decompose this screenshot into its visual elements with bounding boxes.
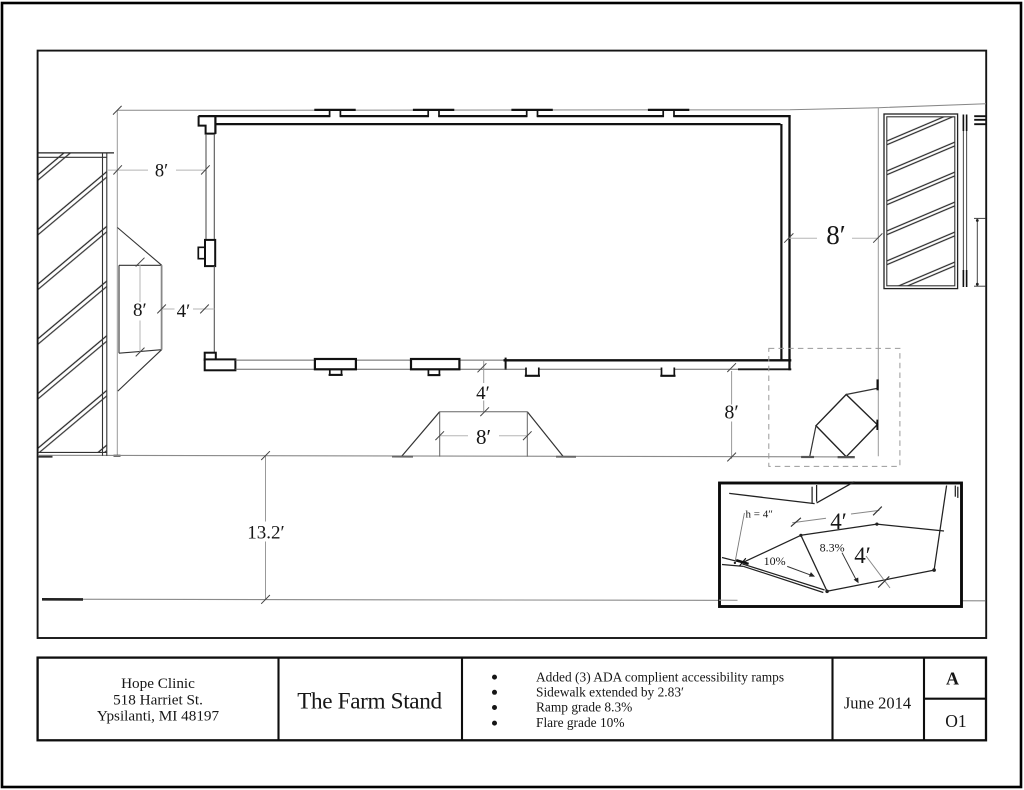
svg-text:10%: 10% (764, 554, 786, 568)
svg-text:Ypsilanti, MI 48197: Ypsilanti, MI 48197 (97, 708, 220, 725)
svg-text:The Farm Stand: The Farm Stand (297, 689, 442, 715)
svg-text:4′: 4′ (476, 383, 490, 404)
svg-text:8′: 8′ (133, 300, 147, 321)
svg-text:8′: 8′ (826, 220, 845, 250)
svg-text:O1: O1 (945, 711, 966, 731)
svg-text:4′: 4′ (854, 543, 871, 568)
svg-text:h = 4″: h = 4″ (746, 508, 773, 520)
svg-text:4′: 4′ (177, 301, 191, 322)
svg-text:8′: 8′ (724, 401, 738, 423)
svg-text:13.2′: 13.2′ (247, 523, 284, 544)
svg-text:June 2014: June 2014 (844, 693, 911, 712)
svg-text:8.3%: 8.3% (820, 541, 845, 555)
svg-text:8′: 8′ (155, 162, 168, 182)
svg-text:Hope Clinic: Hope Clinic (121, 675, 195, 692)
svg-text:518 Harriet St.: 518 Harriet St. (113, 691, 203, 708)
svg-text:Flare grade 10%: Flare grade 10% (536, 715, 625, 730)
svg-text:8′: 8′ (476, 425, 491, 449)
svg-text:A: A (946, 669, 959, 689)
svg-text:Sidewalk extended by 2.83′: Sidewalk extended by 2.83′ (536, 685, 684, 700)
svg-text:Ramp grade 8.3%: Ramp grade 8.3% (536, 700, 632, 715)
svg-text:4′: 4′ (830, 509, 847, 534)
svg-text:Added (3) ADA complient access: Added (3) ADA complient accessibility ra… (536, 669, 784, 684)
